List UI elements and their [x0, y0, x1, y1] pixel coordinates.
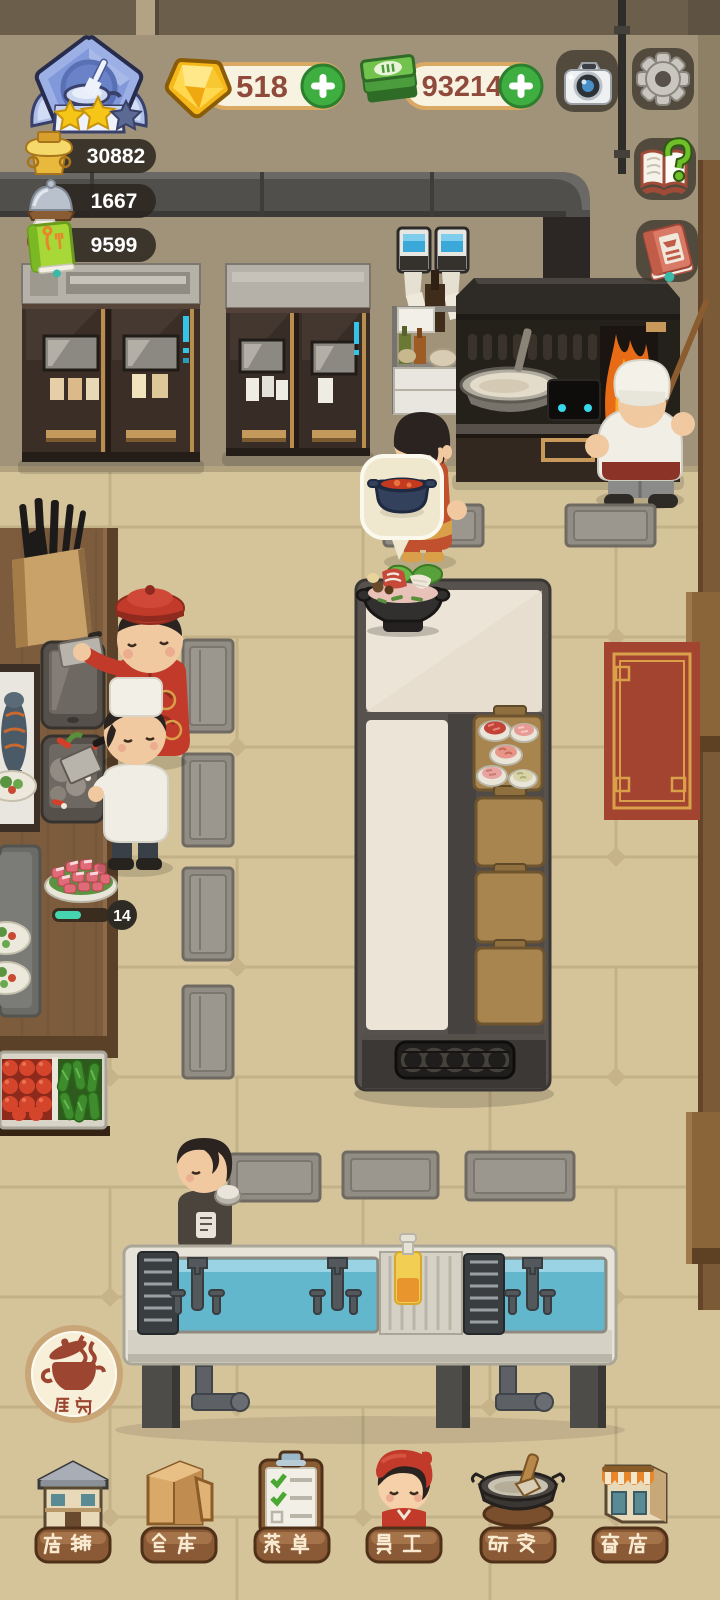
- svg-text:9599: 9599: [91, 234, 138, 257]
- svg-text:14: 14: [113, 908, 131, 925]
- svg-text:518: 518: [236, 69, 288, 104]
- svg-text:1667: 1667: [91, 190, 138, 213]
- svg-text:30882: 30882: [87, 145, 145, 168]
- svg-text:93214: 93214: [422, 71, 503, 103]
